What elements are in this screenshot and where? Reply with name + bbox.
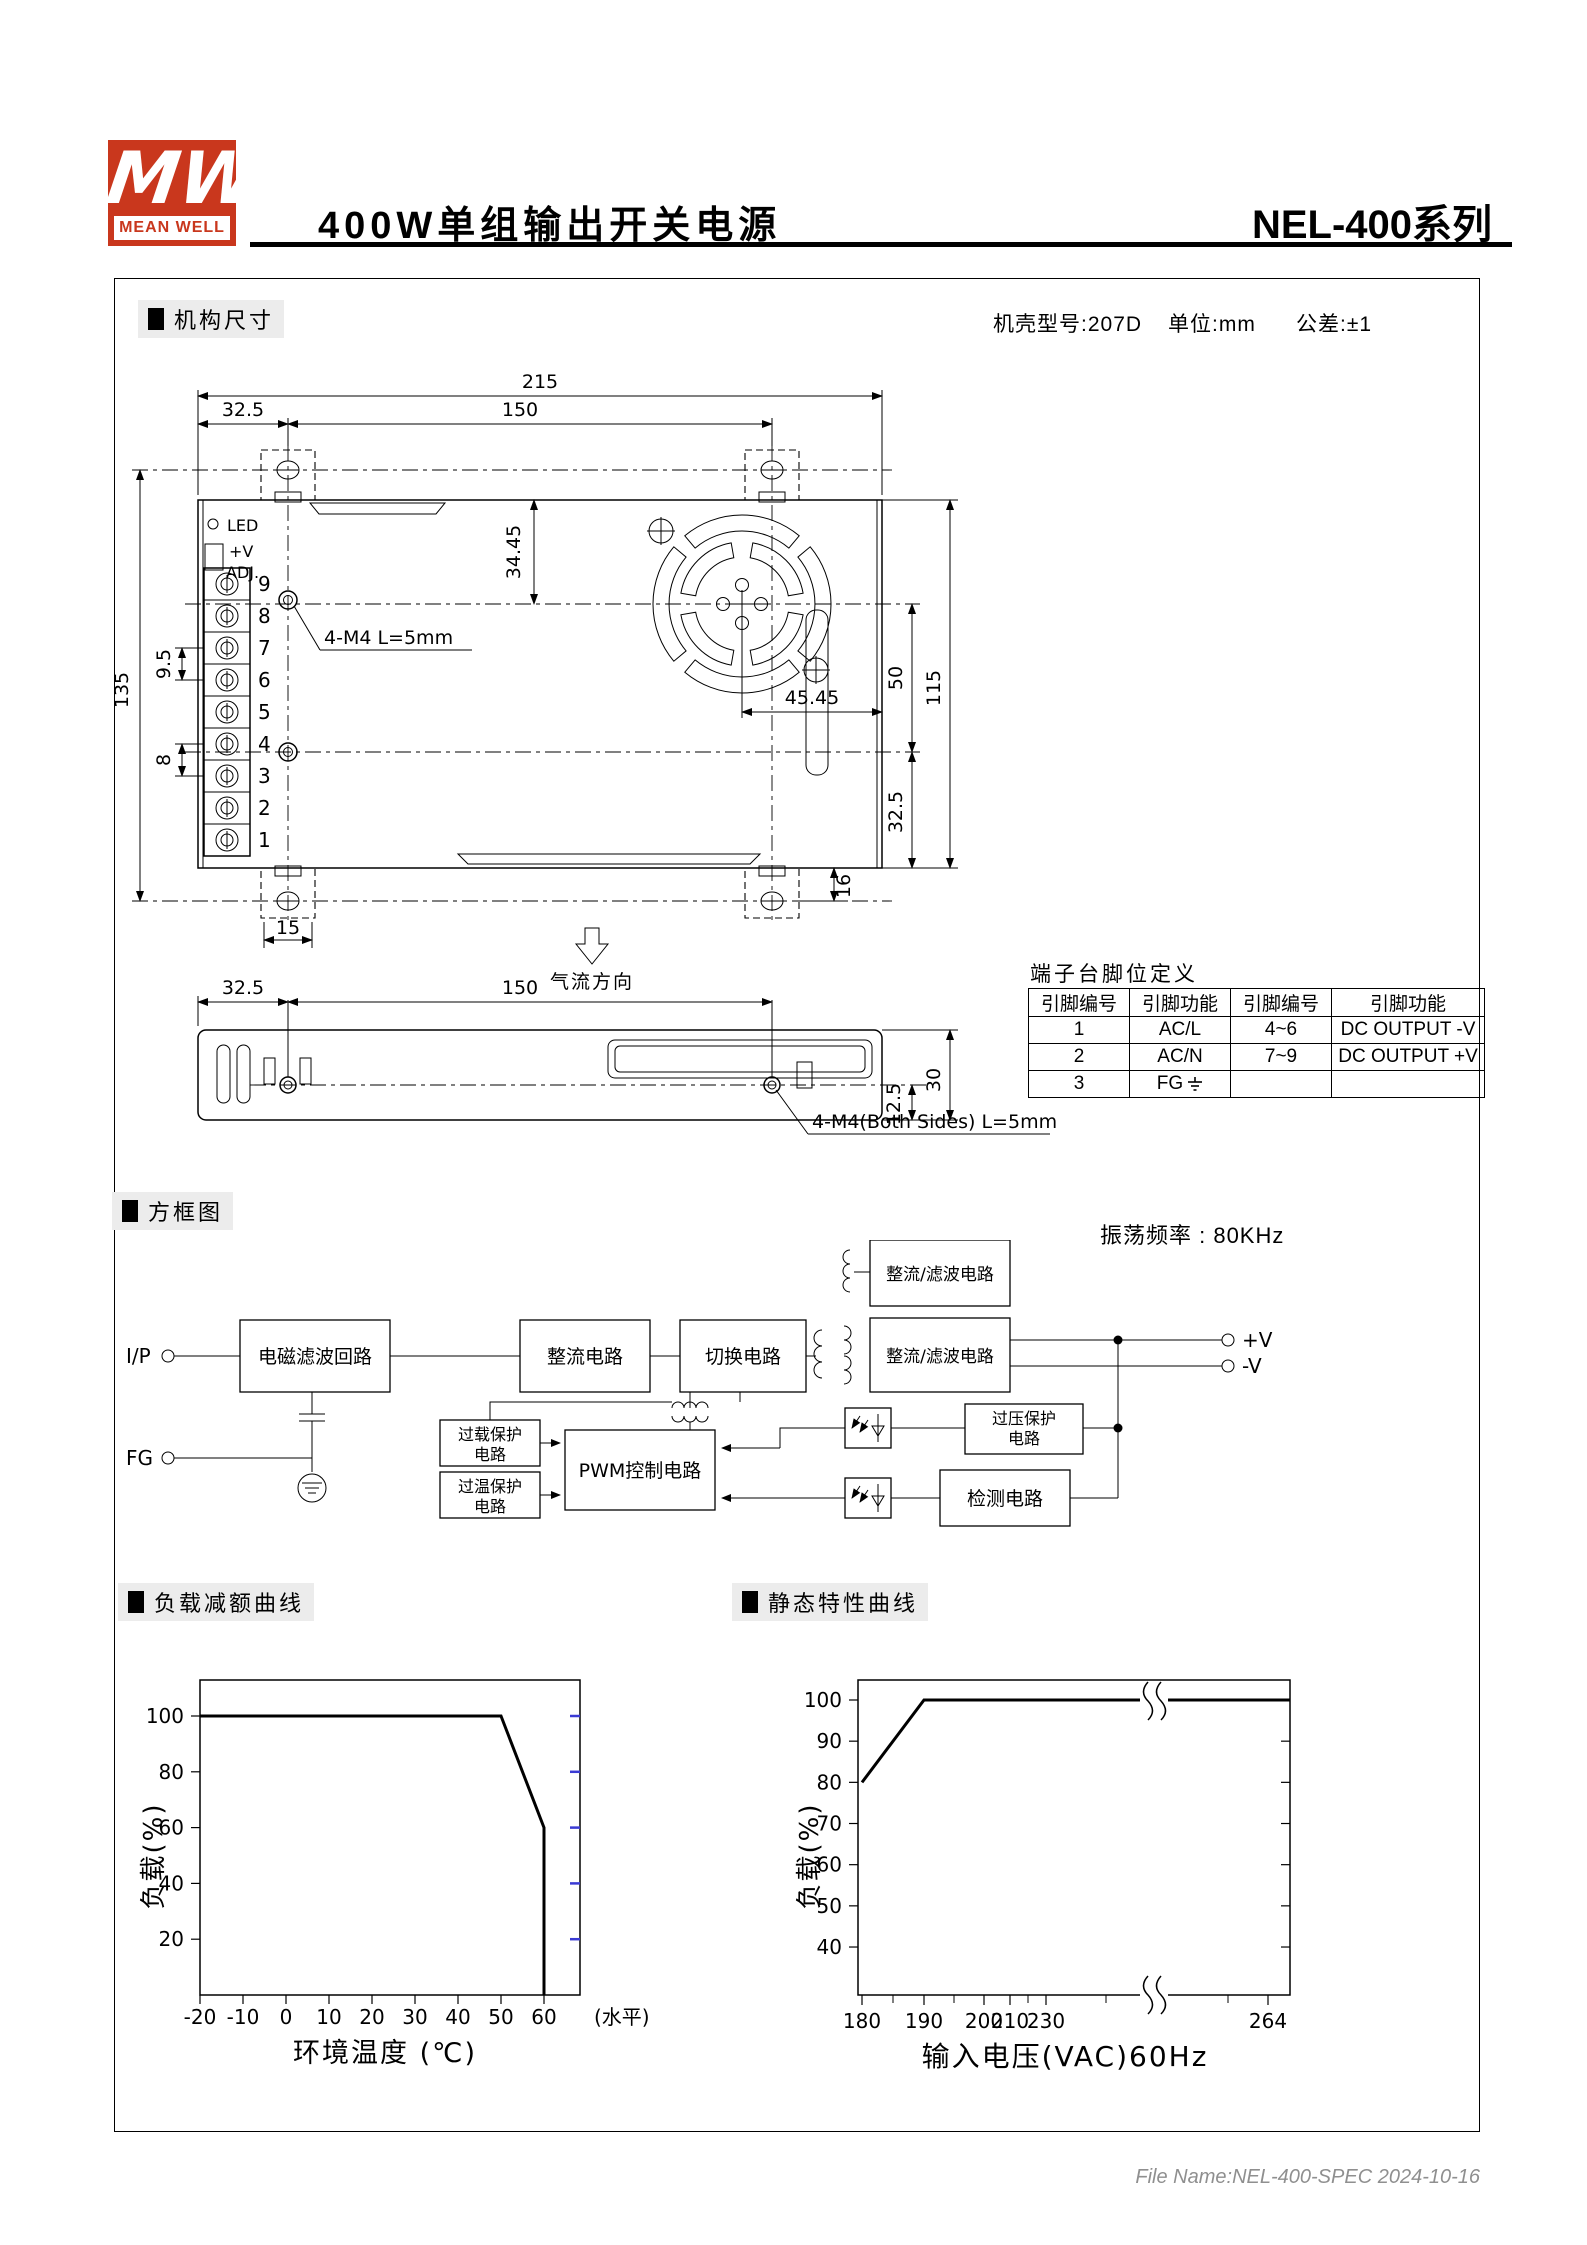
svg-text:电磁滤波回路: 电磁滤波回路: [258, 1346, 372, 1368]
svg-text:3: 3: [258, 764, 271, 788]
section-marker-icon: [122, 1200, 138, 1222]
svg-text:+V: +V: [229, 542, 253, 561]
svg-text:1: 1: [258, 828, 271, 852]
svg-text:50: 50: [885, 666, 907, 690]
svg-text:2: 2: [258, 796, 271, 820]
svg-text:-10: -10: [227, 2005, 260, 2029]
svg-text:215: 215: [522, 371, 558, 393]
svg-text:115: 115: [923, 670, 945, 706]
svg-text:整流电路: 整流电路: [547, 1346, 623, 1368]
file-name-footer: File Name:NEL-400-SPEC 2024-10-16: [990, 2166, 1480, 2189]
svg-text:4-M4 L=5mm: 4-M4 L=5mm: [324, 627, 453, 649]
earth-ground-icon: [1187, 1077, 1203, 1091]
side-view-dimensions: 32.5 150 30 12.5 4-M4(Both Sides) L=5mm: [198, 977, 1057, 1134]
axis-break-icon: [1140, 1682, 1168, 2016]
pin-table-row: 1 AC/L 4~6 DC OUTPUT -V: [1029, 1017, 1485, 1044]
derating-xlabel: 环境温度 (℃): [293, 2038, 477, 2069]
svg-text:-20: -20: [184, 2005, 217, 2029]
svg-text:32.5: 32.5: [222, 399, 264, 421]
svg-text:32.5: 32.5: [222, 977, 264, 999]
svg-text:4-M4(Both Sides) L=5mm: 4-M4(Both Sides) L=5mm: [812, 1111, 1057, 1133]
svg-text:4: 4: [258, 732, 271, 756]
pin-table-header-row: 引脚编号 引脚功能 引脚编号 引脚功能: [1029, 989, 1485, 1017]
svg-text:190: 190: [905, 2009, 943, 2033]
svg-text:135: 135: [114, 672, 133, 708]
svg-text:PWM控制电路: PWM控制电路: [579, 1460, 702, 1482]
svg-text:9: 9: [258, 572, 271, 596]
svg-text:60: 60: [531, 2005, 556, 2029]
svg-text:80: 80: [817, 1770, 842, 1794]
svg-text:LED: LED: [227, 516, 258, 535]
screw-note-top: 4-M4 L=5mm: [294, 606, 472, 650]
svg-text:6: 6: [258, 668, 271, 692]
mounting-brackets: [261, 450, 799, 918]
svg-text:264: 264: [1249, 2009, 1287, 2033]
led-adj-area: LED +V ADJ.: [205, 516, 259, 582]
svg-text:整流/滤波电路: 整流/滤波电路: [886, 1265, 994, 1285]
fan-screws: [647, 517, 830, 684]
pin-table: 引脚编号 引脚功能 引脚编号 引脚功能 1 AC/L 4~6 DC OUTPUT…: [1028, 988, 1485, 1098]
block-diagram: I/P FG 电磁滤波回路 整流电路 切换电路 整流/滤波电路 整流/滤波电路 …: [114, 1240, 1478, 1560]
pin-table-title: 端子台脚位定义: [1030, 958, 1198, 988]
pin-table-row: 3 FG: [1029, 1071, 1485, 1098]
svg-text:电路: 电路: [474, 1497, 506, 1516]
optocoupler-icon: [845, 1478, 891, 1518]
svg-text:FG: FG: [126, 1446, 153, 1470]
side-view: 32.5 150 30 12.5 4-M4(Both Sides) L=5mm: [198, 977, 1057, 1134]
svg-text:40: 40: [445, 2005, 470, 2029]
charts: -20-10010203040506020406080100 (水平) 环境温度…: [114, 1560, 1478, 2126]
terminal-screws: [216, 573, 238, 851]
svg-text:电路: 电路: [1008, 1429, 1040, 1448]
svg-text:I/P: I/P: [126, 1344, 151, 1368]
svg-text:100: 100: [804, 1688, 842, 1712]
svg-text:34.45: 34.45: [503, 525, 525, 579]
svg-text:整流/滤波电路: 整流/滤波电路: [886, 1347, 994, 1367]
svg-text:过温保护: 过温保护: [458, 1477, 522, 1496]
derating-ylabel: 负载(%): [139, 1803, 169, 1910]
svg-text:8: 8: [153, 754, 175, 766]
svg-text:过压保护: 过压保护: [992, 1409, 1056, 1428]
svg-text:80: 80: [159, 1760, 184, 1784]
svg-text:0: 0: [280, 2005, 293, 2029]
optocoupler-icon: [845, 1408, 891, 1448]
static-xlabel: 输入电压(VAC)60Hz: [922, 2040, 1209, 2073]
logo-mw-icon: MW: [102, 136, 242, 220]
svg-text:30: 30: [402, 2005, 427, 2029]
derating-chart: -20-10010203040506020406080100 (水平) 环境温度…: [139, 1680, 650, 2069]
svg-text:90: 90: [817, 1729, 842, 1753]
datasheet-page: MW MEAN WELL 400W单组输出开关电源 NEL-400系列 机构尺寸…: [0, 0, 1587, 2245]
svg-text:电路: 电路: [474, 1445, 506, 1464]
svg-text:过载保护: 过载保护: [458, 1425, 522, 1444]
svg-text:32.5: 32.5: [885, 791, 907, 833]
static-chart: 180190200210230264405060708090100 输入电压(V…: [795, 1680, 1290, 2073]
svg-text:20: 20: [159, 1927, 184, 1951]
svg-text:16: 16: [833, 874, 855, 898]
svg-text:180: 180: [843, 2009, 881, 2033]
svg-text:150: 150: [502, 977, 538, 999]
svg-text:45.45: 45.45: [785, 687, 839, 709]
top-view-dimensions: 215 32.5 150 135 9.5 8 34.45 45.45 50: [114, 371, 958, 948]
airflow-arrow-icon: 气流方向: [550, 928, 634, 993]
x-axis-suffix: (水平): [594, 2005, 650, 2029]
svg-text:210: 210: [991, 2009, 1029, 2033]
terminal-block: 9 8 7 6 5 4 3 2 1: [204, 568, 271, 856]
svg-text:7: 7: [258, 636, 271, 660]
page-title: 400W单组输出开关电源: [318, 194, 781, 249]
svg-text:20: 20: [359, 2005, 384, 2029]
svg-text:50: 50: [488, 2005, 513, 2029]
terminal-numbers: 9 8 7 6 5 4 3 2 1: [258, 572, 271, 852]
meanwell-logo: MW MEAN WELL: [108, 140, 236, 246]
svg-text:5: 5: [258, 700, 271, 724]
svg-text:切换电路: 切换电路: [705, 1346, 781, 1368]
svg-text:10: 10: [316, 2005, 341, 2029]
svg-text:9.5: 9.5: [153, 649, 175, 679]
svg-text:30: 30: [923, 1068, 945, 1092]
top-view: LED +V ADJ.: [114, 371, 958, 993]
pin-table-row: 2 AC/N 7~9 DC OUTPUT +V: [1029, 1044, 1485, 1071]
svg-text:气流方向: 气流方向: [550, 971, 634, 993]
svg-text:+V: +V: [1242, 1328, 1273, 1352]
svg-text:8: 8: [258, 604, 271, 628]
svg-text:150: 150: [502, 399, 538, 421]
logo-brand-text: MEAN WELL: [119, 219, 225, 237]
svg-text:15: 15: [276, 917, 300, 939]
static-ylabel: 负载(%): [795, 1803, 825, 1910]
header-rule: [250, 242, 1512, 247]
section-block-diagram-header: 方框图: [112, 1192, 233, 1230]
svg-text:100: 100: [146, 1704, 184, 1728]
svg-text:230: 230: [1027, 2009, 1065, 2033]
svg-text:-V: -V: [1242, 1354, 1262, 1378]
svg-text:检测电路: 检测电路: [967, 1488, 1043, 1510]
svg-text:40: 40: [817, 1935, 842, 1959]
